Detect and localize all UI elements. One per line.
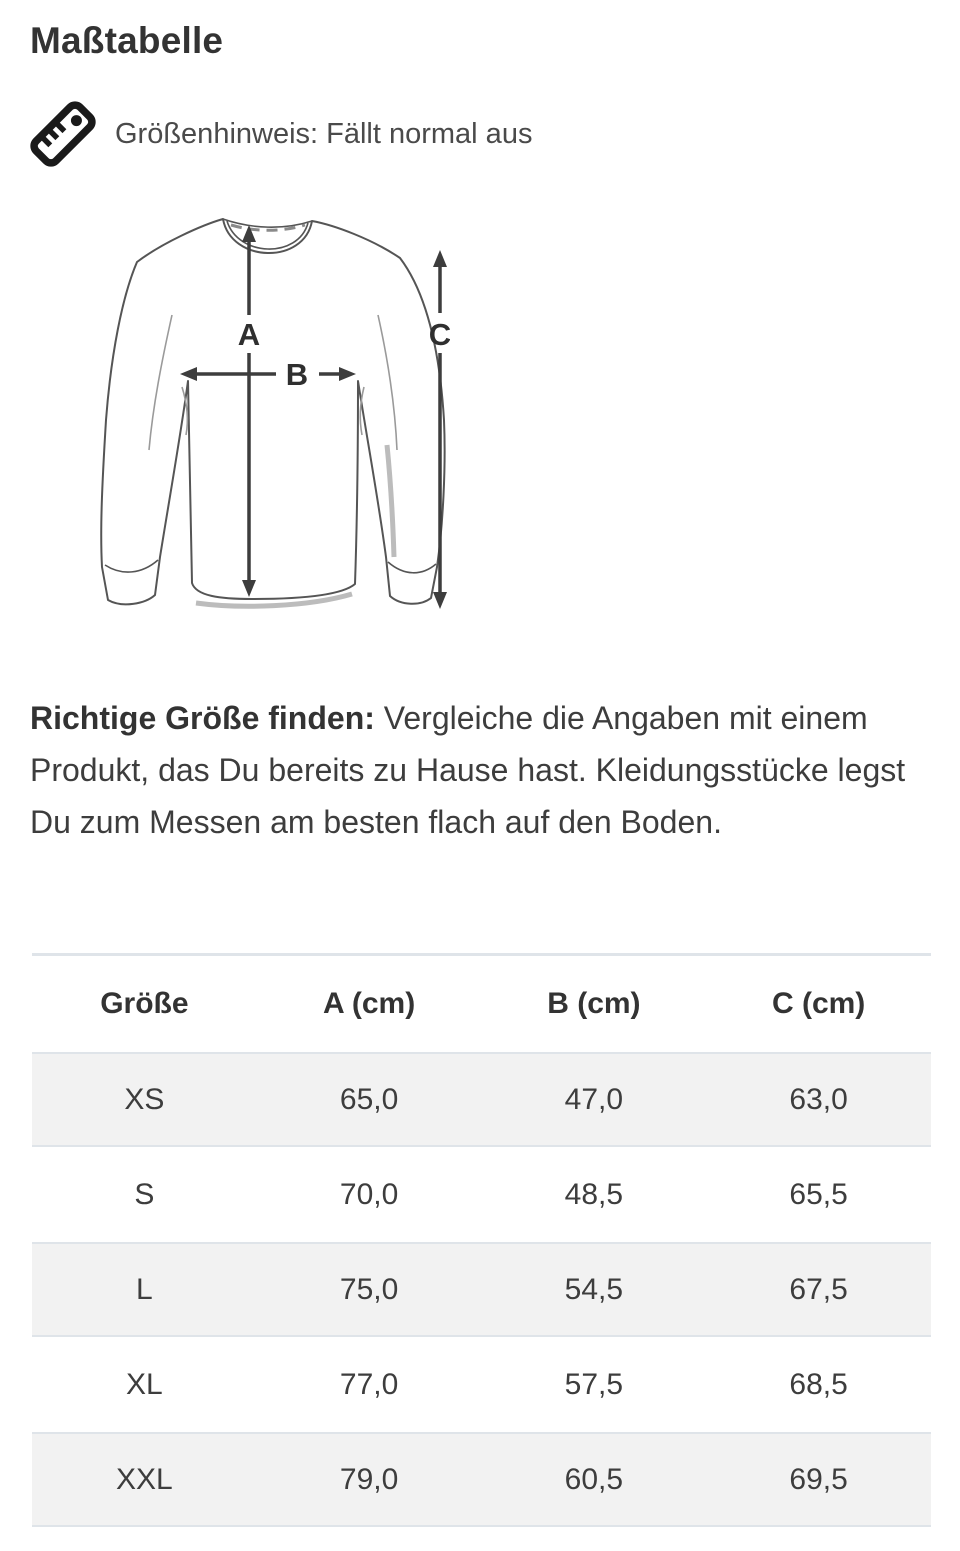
cell-size: XS	[32, 1083, 257, 1117]
cell-c: 68,5	[706, 1368, 931, 1402]
column-header-c: C (cm)	[706, 987, 931, 1021]
size-chart-panel: Maßtabelle Größenhinweis: Fällt normal a…	[0, 0, 960, 1551]
page-title: Maßtabelle	[30, 20, 223, 62]
cell-a: 65,0	[257, 1083, 482, 1117]
ruler-icon	[25, 96, 101, 172]
cell-c: 63,0	[706, 1083, 931, 1117]
column-header-a: A (cm)	[257, 987, 482, 1021]
cell-b: 54,5	[482, 1273, 707, 1307]
size-table-row-xl: XL77,057,568,5	[32, 1337, 931, 1432]
shirt-measurement-diagram: A B C	[100, 205, 450, 625]
cell-a: 75,0	[257, 1273, 482, 1307]
cell-size: XL	[32, 1368, 257, 1402]
measure-label-a: A	[238, 317, 260, 352]
cell-c: 67,5	[706, 1273, 931, 1307]
size-table-row-xs: XS65,047,063,0	[32, 1052, 931, 1147]
cell-size: S	[32, 1178, 257, 1212]
size-finder-paragraph: Richtige Größe finden: Vergleiche die An…	[30, 692, 935, 848]
cell-a: 79,0	[257, 1463, 482, 1497]
size-table: Größe A (cm) B (cm) C (cm) XS65,047,063,…	[32, 953, 931, 1527]
size-table-row-s: S70,048,565,5	[32, 1147, 931, 1242]
size-table-header-row: Größe A (cm) B (cm) C (cm)	[32, 956, 931, 1052]
cell-b: 60,5	[482, 1463, 707, 1497]
cell-c: 65,5	[706, 1178, 931, 1212]
cell-b: 48,5	[482, 1178, 707, 1212]
size-hint-text: Größenhinweis: Fällt normal aus	[115, 118, 532, 151]
column-header-size: Größe	[32, 987, 257, 1021]
cell-b: 57,5	[482, 1368, 707, 1402]
measure-label-b: B	[286, 357, 308, 392]
size-hint-row: Größenhinweis: Fällt normal aus	[25, 96, 905, 172]
measure-label-c: C	[429, 317, 450, 352]
cell-size: XXL	[32, 1463, 257, 1497]
size-table-row-xxl: XXL79,060,569,5	[32, 1432, 931, 1527]
cell-a: 70,0	[257, 1178, 482, 1212]
cell-size: L	[32, 1273, 257, 1307]
cell-a: 77,0	[257, 1368, 482, 1402]
cell-c: 69,5	[706, 1463, 931, 1497]
column-header-b: B (cm)	[482, 987, 707, 1021]
size-table-body: XS65,047,063,0S70,048,565,5L75,054,567,5…	[32, 1052, 931, 1527]
cell-b: 47,0	[482, 1083, 707, 1117]
size-finder-lead: Richtige Größe finden:	[30, 700, 375, 736]
size-table-row-l: L75,054,567,5	[32, 1242, 931, 1337]
